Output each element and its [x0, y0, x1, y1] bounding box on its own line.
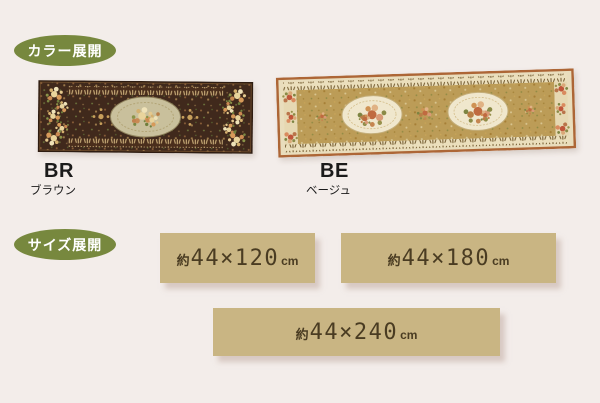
color-name-beige: ベージュ [306, 185, 351, 198]
color-code-br: BR [44, 160, 76, 182]
brown-rug-bottom-band [68, 138, 223, 148]
size-section-badge-label: サイズ展開 [28, 235, 103, 255]
size-section-badge: サイズ展開 [14, 229, 116, 260]
size-option-44x120: 約44×120cm [160, 233, 315, 283]
color-section-badge: カラー展開 [14, 35, 116, 66]
size-label: 約44×180cm [388, 246, 510, 271]
size-label: 約44×120cm [177, 246, 299, 271]
size-label: 約44×240cm [296, 320, 418, 345]
brown-rug-medallion [110, 97, 180, 138]
color-section-badge-label: カラー展開 [28, 41, 103, 61]
size-option-44x240: 約44×240cm [213, 308, 500, 356]
color-option-beige: BE ベージュ [306, 160, 351, 198]
brown-rug-illustration [38, 80, 254, 154]
beige-rug-illustration [276, 68, 576, 157]
color-name-brown: ブラウン [30, 185, 76, 198]
product-info-panel: カラー展開 [0, 0, 600, 403]
brown-rug-top-band [68, 86, 223, 96]
brown-rug-photo [38, 80, 254, 154]
beige-rug-photo [276, 68, 576, 157]
size-option-44x180: 約44×180cm [341, 233, 556, 283]
color-code-be: BE [320, 160, 351, 182]
color-option-brown: BR ブラウン [30, 160, 76, 198]
